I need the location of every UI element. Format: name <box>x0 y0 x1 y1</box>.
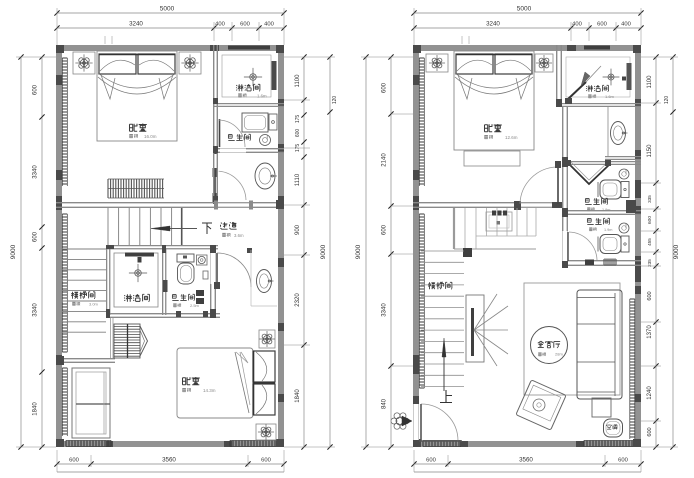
svg-text:9000: 9000 <box>355 244 362 259</box>
svg-text:28m: 28m <box>555 352 563 357</box>
svg-text:1.9m: 1.9m <box>602 208 610 212</box>
svg-text:400: 400 <box>572 22 582 28</box>
svg-text:5000: 5000 <box>160 6 175 13</box>
svg-text:1.9m: 1.9m <box>604 228 612 232</box>
svg-text:9000: 9000 <box>320 244 327 259</box>
svg-text:3560: 3560 <box>162 457 176 464</box>
svg-text:600: 600 <box>33 231 39 242</box>
svg-text:235: 235 <box>647 259 652 267</box>
svg-text:455: 455 <box>647 238 652 246</box>
svg-text:9000: 9000 <box>10 244 17 259</box>
svg-text:120: 120 <box>664 96 670 105</box>
svg-text:14.3m: 14.3m <box>203 388 216 393</box>
svg-text:16.0m: 16.0m <box>144 134 157 139</box>
svg-text:3340: 3340 <box>33 303 39 317</box>
svg-text:120: 120 <box>332 96 338 105</box>
svg-text:600: 600 <box>33 84 39 95</box>
svg-text:840: 840 <box>382 398 388 409</box>
svg-text:600: 600 <box>597 22 607 28</box>
svg-text:335: 335 <box>647 195 652 203</box>
svg-text:600: 600 <box>382 82 388 93</box>
svg-text:3240: 3240 <box>486 21 500 28</box>
svg-text:1240: 1240 <box>647 386 653 400</box>
svg-text:2320: 2320 <box>295 293 301 307</box>
svg-text:400: 400 <box>621 22 631 28</box>
svg-text:600: 600 <box>382 224 388 235</box>
svg-text:400: 400 <box>264 22 274 28</box>
svg-text:3240: 3240 <box>129 21 143 28</box>
svg-text:600: 600 <box>426 458 436 464</box>
svg-text:3340: 3340 <box>382 303 388 317</box>
svg-text:1150: 1150 <box>647 144 653 158</box>
svg-text:1110: 1110 <box>295 173 301 186</box>
svg-text:175: 175 <box>295 115 301 124</box>
svg-text:600: 600 <box>69 458 79 464</box>
svg-text:600: 600 <box>618 458 628 464</box>
svg-text:3.0m: 3.0m <box>89 302 99 307</box>
svg-text:9000: 9000 <box>673 244 680 259</box>
svg-text:3340: 3340 <box>33 165 39 179</box>
svg-text:600: 600 <box>295 129 301 138</box>
svg-text:1840: 1840 <box>33 402 39 416</box>
svg-text:1370: 1370 <box>647 325 653 339</box>
svg-text:900: 900 <box>295 224 301 235</box>
svg-text:3560: 3560 <box>519 457 533 464</box>
svg-text:600: 600 <box>647 427 653 436</box>
svg-text:5000: 5000 <box>517 6 532 13</box>
svg-text:3.6m: 3.6m <box>234 233 244 238</box>
svg-text:1100: 1100 <box>295 74 301 88</box>
svg-text:12.6m: 12.6m <box>505 135 518 140</box>
svg-text:1.6m: 1.6m <box>257 93 267 98</box>
svg-text:2140: 2140 <box>382 153 388 167</box>
svg-text:1100: 1100 <box>647 75 653 89</box>
svg-text:1.6m: 1.6m <box>605 94 615 99</box>
svg-text:400: 400 <box>215 22 225 28</box>
svg-text:600: 600 <box>647 291 653 300</box>
svg-text:600: 600 <box>647 216 653 224</box>
svg-text:600: 600 <box>261 458 271 464</box>
svg-text:1840: 1840 <box>295 389 301 403</box>
svg-text:600: 600 <box>240 22 250 28</box>
